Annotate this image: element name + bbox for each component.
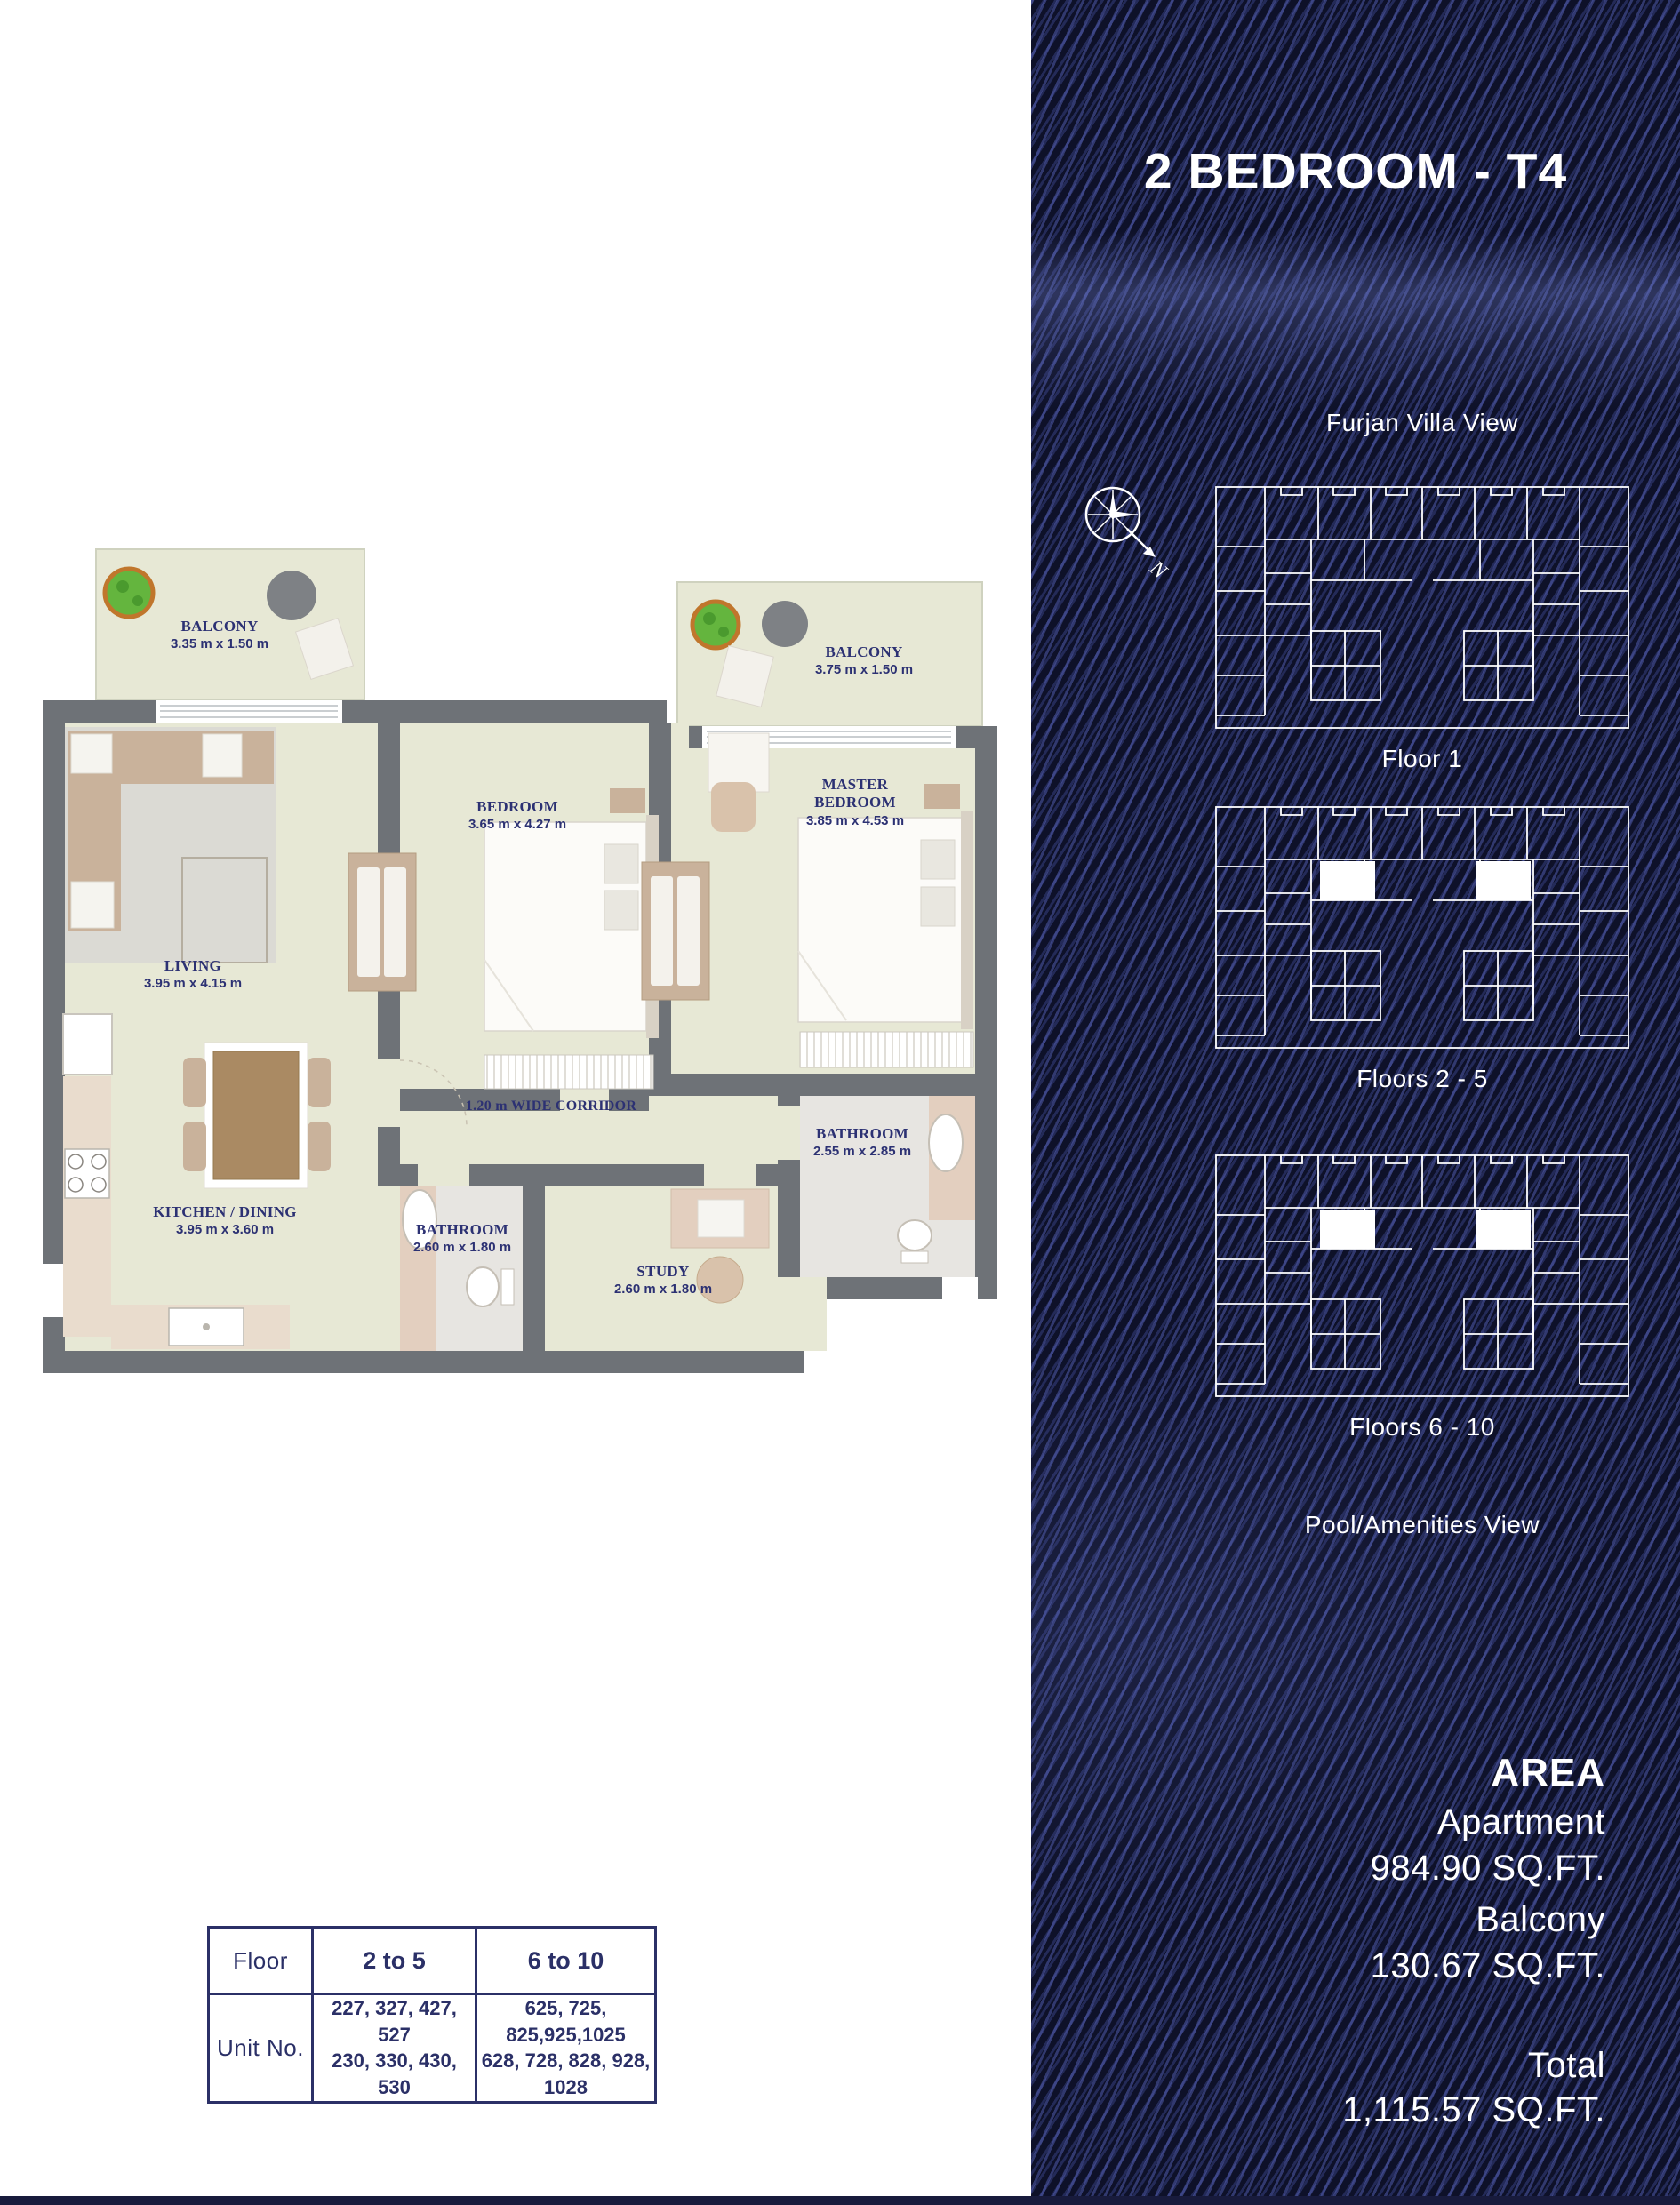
keyplan-floors-2-5 xyxy=(1213,804,1631,1051)
floor-range-cell: 6 to 10 xyxy=(476,1928,656,1994)
furjan-villa-view-label: Furjan Villa View xyxy=(1213,409,1631,437)
keyplan-label-floors-6-10: Floors 6 - 10 xyxy=(1213,1413,1631,1442)
unit-numbers-line: 230, 330, 430, 530 xyxy=(314,2048,475,2100)
table-row: Unit No. 227, 327, 427, 527 230, 330, 43… xyxy=(209,1994,656,2103)
bathroom-master-fixtures xyxy=(800,1096,975,1277)
area-heading: AREA xyxy=(1491,1751,1605,1795)
unit-numbers-cell: 227, 327, 427, 527 230, 330, 430, 530 xyxy=(313,1994,476,2103)
page-title: 2 BEDROOM - T4 xyxy=(1031,142,1680,201)
table-row: Floor 2 to 5 6 to 10 xyxy=(209,1928,656,1994)
unit-numbers-cell: 625, 725, 825,925,1025 628, 728, 828, 92… xyxy=(476,1994,656,2103)
floor-range-cell: 2 to 5 xyxy=(313,1928,476,1994)
apartment-area-label: Apartment xyxy=(1437,1802,1605,1842)
apartment-area-value: 984.90 SQ.FT. xyxy=(1371,1849,1605,1889)
sidebar: 2 BEDROOM - T4 Furjan Villa View N xyxy=(1031,0,1680,2205)
total-area-value: 1,115.57 SQ.FT. xyxy=(1342,2090,1605,2130)
highlighted-units xyxy=(1320,1210,1531,1249)
compass-n-label: N xyxy=(1145,556,1172,578)
balcony-area-value: 130.67 SQ.FT. xyxy=(1371,1946,1605,1986)
floor-header-cell: Floor xyxy=(209,1928,313,1994)
unit-no-header-cell: Unit No. xyxy=(209,1994,313,2103)
total-area-label: Total xyxy=(1528,2046,1605,2086)
apartment-floor-plan xyxy=(36,542,1013,1378)
balcony-area-label: Balcony xyxy=(1476,1900,1605,1940)
pool-amenities-view-label: Pool/Amenities View xyxy=(1213,1511,1631,1539)
unit-numbers-line: 628, 728, 828, 928, 1028 xyxy=(477,2048,654,2100)
unit-numbers-line: 227, 327, 427, 527 xyxy=(314,1995,475,2048)
compass-icon: N xyxy=(1074,475,1172,578)
keyplan-label-floors-2-5: Floors 2 - 5 xyxy=(1213,1065,1631,1093)
keyplan-floor-1 xyxy=(1213,484,1631,731)
keyplan-floors-6-10 xyxy=(1213,1153,1631,1399)
brochure-page: BALCONY 3.35 m x 1.50 m BALCONY 3.75 m x… xyxy=(0,0,1680,2205)
unit-numbers-line: 625, 725, 825,925,1025 xyxy=(477,1995,654,2048)
bathroom-small-fixtures xyxy=(400,1186,523,1351)
keyplan-label-floor-1: Floor 1 xyxy=(1213,745,1631,773)
units-table: Floor 2 to 5 6 to 10 Unit No. 227, 327, … xyxy=(207,1926,657,2104)
bottom-edge-bar xyxy=(0,2196,1680,2205)
highlighted-units xyxy=(1320,861,1531,900)
